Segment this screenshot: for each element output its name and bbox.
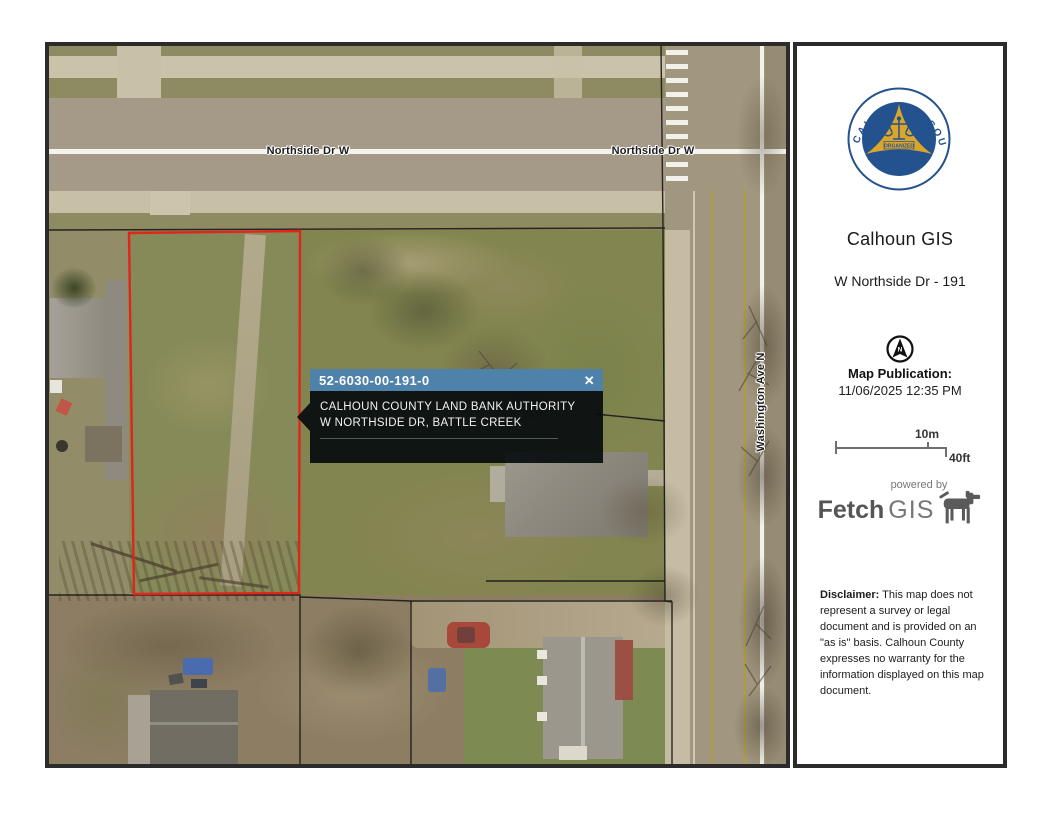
fetchgis-dog-icon <box>938 489 982 531</box>
sidewalk-south <box>49 191 665 213</box>
house-roof <box>50 298 105 378</box>
dormer <box>537 712 547 721</box>
blue-tarp <box>183 658 213 675</box>
disclaimer-text: This map does not represent a survey or … <box>820 589 984 697</box>
driveway-apron <box>554 46 582 98</box>
white-object <box>50 380 62 393</box>
tree <box>599 476 689 546</box>
shed-roof <box>85 426 122 462</box>
parcel-id: 52-6030-00-191-0 <box>319 373 429 388</box>
popup-divider <box>320 438 558 439</box>
map-frame: Northside Dr W Northside Dr W Washington… <box>45 42 790 768</box>
driveway-apron <box>117 46 161 98</box>
north-arrow-icon: N <box>885 334 915 364</box>
tree <box>52 268 96 308</box>
tree <box>629 566 699 626</box>
fetchgis-brand-bold: Fetch <box>818 496 885 525</box>
dormer <box>537 676 547 685</box>
publication-label: Map Publication: <box>797 366 1003 381</box>
publication-datetime: 11/06/2025 12:35 PM <box>797 383 1003 398</box>
parcel-address: W NORTHSIDE DR, BATTLE CREEK <box>320 415 593 431</box>
disclaimer: Disclaimer: This map does not represent … <box>820 587 990 699</box>
house-roof <box>150 690 238 764</box>
car-windshield <box>457 627 475 643</box>
app-title: Calhoun GIS <box>797 229 1003 250</box>
scale-bar: 10m 40ft <box>827 425 987 467</box>
street-label-northside-left: Northside Dr W <box>267 145 350 157</box>
tree <box>737 76 786 196</box>
scale-metric-label: 10m <box>915 427 939 441</box>
map-canvas[interactable]: Northside Dr W Northside Dr W Washington… <box>49 46 786 764</box>
street-label-washington: Washington Ave N <box>755 352 767 451</box>
scale-imperial-label: 40ft <box>949 451 970 465</box>
driveway-apron <box>150 191 190 215</box>
map-subtitle: W Northside Dr - 191 <box>797 273 1003 289</box>
seal-banner: ORGANIZED <box>884 143 914 149</box>
lane-line-yellow <box>711 191 713 764</box>
porch-roof-red <box>615 640 633 700</box>
street-label-northside-right: Northside Dr W <box>612 145 695 157</box>
roof-ridge <box>150 722 238 725</box>
concrete-pad <box>128 695 150 764</box>
popup-body: CALHOUN COUNTY LAND BANK AUTHORITY W NOR… <box>310 391 603 463</box>
tree <box>304 606 414 696</box>
curb-line <box>693 191 695 764</box>
seal-year: 1833 <box>892 152 906 158</box>
terrain-patch <box>49 213 665 230</box>
tree <box>739 556 786 686</box>
parcel-owner: CALHOUN COUNTY LAND BANK AUTHORITY <box>320 399 593 415</box>
dormer <box>537 650 547 659</box>
disclaimer-label: Disclaimer: <box>820 589 879 601</box>
dark-object <box>56 440 68 452</box>
roof-ridge <box>581 637 585 759</box>
dark-object <box>191 679 207 688</box>
porch-white <box>559 746 587 760</box>
crosswalk <box>666 50 688 190</box>
tree <box>734 686 786 764</box>
county-seal: CALHOUN COUNTY MICHIGAN ORGANIZED 1833 <box>847 87 951 191</box>
fetchgis-brand-rest: GIS <box>888 496 934 525</box>
close-icon[interactable]: ✕ <box>584 374 595 387</box>
sidebar: CALHOUN COUNTY MICHIGAN ORGANIZED 1833 C… <box>793 42 1007 768</box>
popup-pointer <box>297 403 310 431</box>
north-letter: N <box>898 347 903 354</box>
blue-object <box>428 668 446 692</box>
popup-header: 52-6030-00-191-0 ✕ <box>310 369 603 391</box>
parcel-info-popup: 52-6030-00-191-0 ✕ CALHOUN COUNTY LAND B… <box>310 369 603 463</box>
fetchgis-logo: powered by FetchGIS <box>797 479 1003 531</box>
